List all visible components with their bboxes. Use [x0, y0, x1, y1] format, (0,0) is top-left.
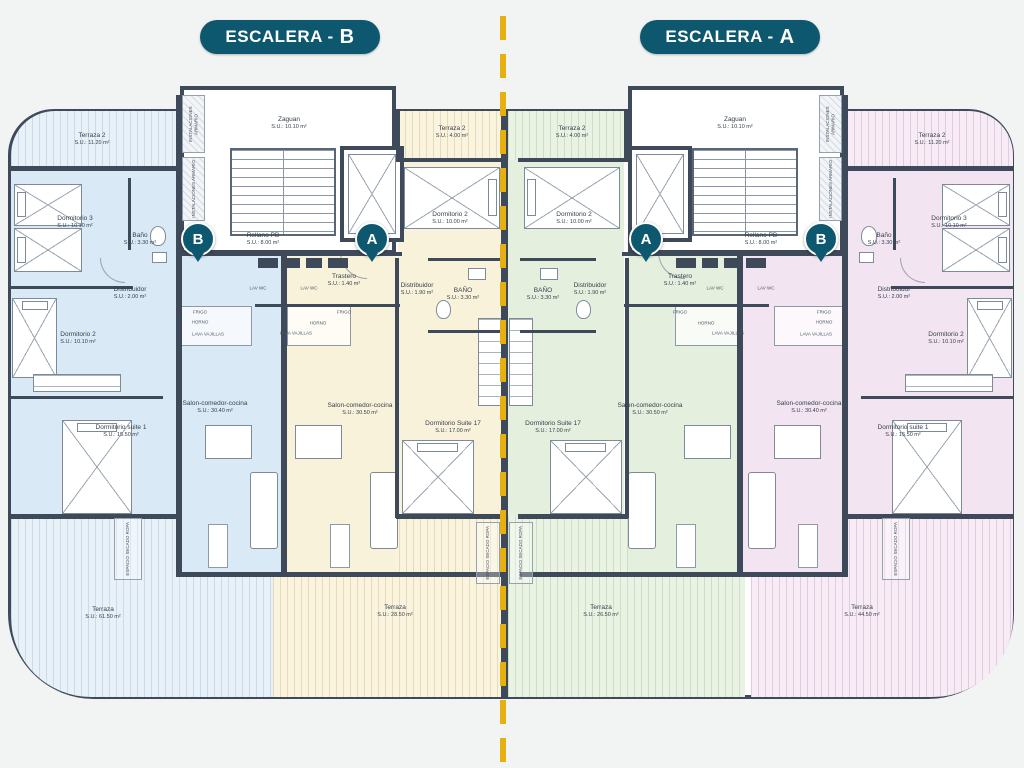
pillow	[17, 192, 26, 217]
planter	[676, 524, 696, 568]
frigo-label: FRIGO	[193, 310, 207, 315]
horno-label: HORNO	[698, 321, 715, 326]
room-area: S.U.: 3.30 m²	[124, 241, 156, 248]
pillow	[565, 443, 606, 452]
room-area: S.U.: 2.00 m²	[878, 295, 911, 302]
wall	[520, 330, 596, 333]
marker-pin-b-right: B	[804, 222, 836, 264]
room-label-cream-trastero: TrasteroS.U.: 1.40 m²	[328, 273, 360, 289]
instalaciones-box: INSTALACIONES ARMARIO	[182, 157, 205, 221]
washbasin	[152, 252, 167, 263]
room-label-cream-dormitorio2: Dormitorio 2S.U.: 10.00 m²	[432, 211, 467, 227]
secado-ropa-label: ESPACIO SECADO ROPA	[518, 526, 523, 580]
room-label-pink-dormitorio2: Dormitorio 2S.U.: 10.10 m²	[928, 331, 963, 347]
bed	[967, 298, 1012, 378]
wall	[255, 304, 400, 307]
toilet	[436, 300, 451, 319]
room-area: S.U.: 15.50 m²	[878, 433, 929, 440]
room-label-pink-terraza2: Terraza 2S.U.: 11.20 m²	[914, 132, 949, 148]
room-area: S.U.: 3.30 m²	[447, 296, 479, 303]
room-name: Baño	[124, 232, 156, 240]
room-label-pink-dormitorio3: Dormitorio 3S.U.: 10.10 m²	[931, 215, 966, 231]
room-label-blue-dormitorio3: Dormitorio 3S.U.: 10.10 m²	[57, 215, 92, 231]
marker-letter: B	[181, 222, 215, 256]
pillow	[488, 179, 497, 216]
sofa	[748, 472, 776, 549]
room-name: Salon-comedor-cocina	[617, 402, 682, 410]
room-area: S.U.: 4.00 m²	[436, 134, 468, 141]
escalera-b-prefix: ESCALERA -	[225, 27, 333, 47]
wall	[625, 258, 629, 518]
room-name: Terraza	[377, 604, 412, 612]
room-area: S.U.: 26.50 m²	[583, 613, 618, 620]
wall	[845, 166, 1013, 171]
room-label-green-trastero: TrasteroS.U.: 1.40 m²	[664, 273, 696, 289]
dining-table	[774, 425, 821, 459]
room-area: S.U.: 1.90 m²	[574, 291, 607, 298]
instalaciones-label: INSTALACIONES ARMARIO	[188, 96, 199, 152]
sofa	[250, 472, 278, 549]
secado-ropa-label: ESPACIO SECADO ROPA	[125, 522, 130, 576]
room-area: S.U.: 10.10 m²	[271, 125, 306, 132]
wall	[395, 258, 399, 518]
room-name: Distribuidor	[401, 282, 434, 290]
room-label-green-dormitorio2: Dormitorio 2S.U.: 10.00 m²	[556, 211, 591, 227]
room-label-pink-suite1: Dormitorio suite 1S.U.: 15.50 m²	[878, 424, 929, 440]
room-label-green-salon: Salon-comedor-cocinaS.U.: 30.50 m²	[617, 402, 682, 418]
room-area: S.U.: 11.20 m²	[74, 141, 109, 148]
room-label-zaguan-b: ZaguanS.U.: 10.10 m²	[271, 116, 306, 132]
horno-label: HORNO	[816, 320, 833, 325]
wall	[520, 572, 846, 577]
room-area: S.U.: 3.30 m²	[868, 241, 900, 248]
room-label-zaguan-a: ZaguanS.U.: 10.10 m²	[717, 116, 752, 132]
room-label-green-terraza: TerrazaS.U.: 26.50 m²	[583, 604, 618, 620]
room-name: Distribuidor	[114, 286, 147, 294]
lav-wc-label: LAV WC	[301, 286, 318, 291]
room-area: S.U.: 61.50 m²	[85, 615, 120, 622]
pillow	[22, 301, 48, 310]
wall	[11, 166, 179, 171]
room-area: S.U.: 10.00 m²	[432, 220, 467, 227]
room-area: S.U.: 10.10 m²	[60, 340, 95, 347]
room-label-cream-bano: BAÑOS.U.: 3.30 m²	[447, 287, 479, 303]
wardrobe	[33, 374, 121, 392]
shelf	[746, 258, 766, 268]
room-area: S.U.: 17.00 m²	[425, 429, 481, 436]
room-name: Terraza 2	[436, 125, 468, 133]
room-area: S.U.: 2.00 m²	[114, 295, 147, 302]
room-name: Distribuidor	[878, 286, 911, 294]
room-name: Baño	[868, 232, 900, 240]
instalaciones-box: INSTALACIONES ARMARIO	[182, 95, 205, 153]
marker-letter: B	[804, 222, 838, 256]
secado-ropa-label: ESPACIO SECADO ROPA	[893, 522, 898, 576]
shelf	[258, 258, 278, 268]
room-name: Dormitorio 2	[928, 331, 963, 339]
room-name: Distribuidor	[574, 282, 607, 290]
room-name: Dormitorio 2	[556, 211, 591, 219]
room-area: S.U.: 1.90 m²	[401, 291, 434, 298]
room-area: S.U.: 10.00 m²	[556, 220, 591, 227]
secado-ropa-label: ESPACIO SECADO ROPA	[485, 526, 490, 580]
room-label-pink-distribuidor: DistribuidorS.U.: 2.00 m²	[878, 286, 911, 302]
room-name: Dormitorio suite 1	[96, 424, 147, 432]
wall	[428, 330, 504, 333]
wall	[520, 258, 596, 261]
lavavajillas-label: LAVA VAJILLAS	[712, 331, 744, 336]
room-name: Rellano PB	[247, 232, 280, 240]
marker-pin-a-right: A	[629, 222, 661, 264]
room-area: S.U.: 28.50 m²	[377, 613, 412, 620]
room-name: Zaguan	[717, 116, 752, 124]
marker-pin-b-left: B	[181, 222, 213, 264]
wardrobe	[905, 374, 993, 392]
bed	[14, 228, 82, 272]
pillow	[527, 179, 536, 216]
room-label-pink-bano: BañoS.U.: 3.30 m²	[868, 232, 900, 248]
room-label-blue-suite1: Dormitorio suite 1S.U.: 15.50 m²	[96, 424, 147, 440]
instalaciones-box: INSTALACIONES ARMARIO	[819, 95, 842, 153]
shelf	[676, 258, 696, 268]
escalera-a-letter: A	[780, 26, 795, 49]
room-label-cream-terraza2: Terraza 2S.U.: 4.00 m²	[436, 125, 468, 141]
room-area: S.U.: 10.10 m²	[57, 224, 92, 231]
room-label-cream-terraza: TerrazaS.U.: 28.50 m²	[377, 604, 412, 620]
bed	[942, 228, 1010, 272]
lavavajillas-label: LAVA VAJILLAS	[800, 332, 832, 337]
wall	[11, 514, 179, 519]
room-area: S.U.: 1.40 m²	[328, 282, 360, 289]
room-area: S.U.: 1.40 m²	[664, 282, 696, 289]
room-label-rellano-b: Rellano PBS.U.: 8.00 m²	[247, 232, 280, 248]
escalera-b-letter: B	[340, 26, 355, 49]
frigo-label: FRIGO	[673, 310, 687, 315]
wall	[624, 111, 628, 160]
room-area: S.U.: 30.40 m²	[776, 409, 841, 416]
washbasin	[468, 268, 486, 280]
instalaciones-label: INSTALACIONES ARMARIO	[825, 96, 836, 152]
secado-ropa-box: ESPACIO SECADO ROPA	[509, 522, 533, 584]
wall	[518, 514, 628, 519]
room-name: Rellano PB	[745, 232, 778, 240]
room-name: Zaguan	[271, 116, 306, 124]
instalaciones-box: INSTALACIONES ARMARIO	[819, 157, 842, 221]
room-area: S.U.: 15.50 m²	[96, 433, 147, 440]
pillow	[17, 237, 26, 263]
pillow	[998, 237, 1007, 263]
room-name: Dormitorio 3	[57, 215, 92, 223]
lav-wc-label: LAV WC	[758, 286, 775, 291]
escalera-b-title: ESCALERA -B	[200, 20, 380, 54]
room-area: S.U.: 10.10 m²	[931, 224, 966, 231]
planter	[208, 524, 228, 568]
marker-pin-a-left: A	[355, 222, 387, 264]
room-name: Terraza	[844, 604, 879, 612]
wall	[842, 95, 848, 577]
kitchen-counter	[774, 306, 846, 346]
room-name: Trastero	[664, 273, 696, 281]
room-label-green-suite: Dormitorio Suite 17S.U.: 17.00 m²	[525, 420, 581, 436]
dining-table	[684, 425, 731, 459]
room-label-blue-dormitorio2: Dormitorio 2S.U.: 10.10 m²	[60, 331, 95, 347]
shelf	[702, 258, 718, 268]
room-name: Trastero	[328, 273, 360, 281]
room-area: S.U.: 10.10 m²	[717, 125, 752, 132]
room-area: S.U.: 4.00 m²	[556, 134, 588, 141]
room-label-green-terraza2: Terraza 2S.U.: 4.00 m²	[556, 125, 588, 141]
pillow	[977, 301, 1003, 310]
room-area: S.U.: 10.10 m²	[928, 340, 963, 347]
room-name: Salon-comedor-cocina	[182, 400, 247, 408]
pillow	[417, 443, 458, 452]
dining-table	[205, 425, 252, 459]
room-area: S.U.: 8.00 m²	[247, 241, 280, 248]
instalaciones-label: INSTALACIONES ARMARIO	[191, 160, 196, 218]
room-name: Dormitorio Suite 17	[525, 420, 581, 428]
horno-label: HORNO	[310, 321, 327, 326]
wall	[396, 158, 506, 162]
room-name: BAÑO	[447, 287, 479, 295]
sofa	[370, 472, 398, 549]
room-label-blue-terraza2: Terraza 2S.U.: 11.20 m²	[74, 132, 109, 148]
room-name: Salon-comedor-cocina	[776, 400, 841, 408]
frigo-label: FRIGO	[817, 310, 831, 315]
room-name: Dormitorio suite 1	[878, 424, 929, 432]
shelf	[328, 258, 348, 268]
room-area: S.U.: 44.50 m²	[844, 613, 879, 620]
wall	[396, 111, 400, 160]
room-label-blue-bano: BañoS.U.: 3.30 m²	[124, 232, 156, 248]
room-area: S.U.: 11.20 m²	[914, 141, 949, 148]
lav-wc-label: LAV WC	[707, 286, 724, 291]
room-label-blue-salon: Salon-comedor-cocinaS.U.: 30.40 m²	[182, 400, 247, 416]
wall	[624, 304, 769, 307]
kitchen-counter	[180, 306, 252, 346]
pillow	[998, 192, 1007, 217]
center-division-dashed-line	[500, 16, 506, 764]
wall	[178, 572, 504, 577]
room-name: Dormitorio 2	[432, 211, 467, 219]
room-area: S.U.: 30.50 m²	[617, 411, 682, 418]
instalaciones-label: INSTALACIONES ARMARIO	[828, 160, 833, 218]
sofa	[628, 472, 656, 549]
room-label-cream-suite: Dormitorio Suite 17S.U.: 17.00 m²	[425, 420, 481, 436]
room-label-blue-distribuidor: DistribuidorS.U.: 2.00 m²	[114, 286, 147, 302]
wall	[428, 258, 504, 261]
room-name: Terraza 2	[914, 132, 949, 140]
room-label-blue-terraza: TerrazaS.U.: 61.50 m²	[85, 606, 120, 622]
floor-plan: INSTALACIONES ARMARIO INSTALACIONES ARMA…	[0, 0, 1024, 768]
room-name: Dormitorio 2	[60, 331, 95, 339]
wall	[861, 396, 1013, 399]
room-label-green-distribuidor: DistribuidorS.U.: 1.90 m²	[574, 282, 607, 298]
room-area: S.U.: 3.30 m²	[527, 296, 559, 303]
room-area: S.U.: 17.00 m²	[525, 429, 581, 436]
room-area: S.U.: 30.50 m²	[327, 411, 392, 418]
secado-ropa-box: ESPACIO SECADO ROPA	[476, 522, 500, 584]
wall	[396, 514, 506, 519]
planter	[330, 524, 350, 568]
staircase-a	[692, 148, 798, 236]
marker-letter: A	[629, 222, 663, 256]
room-label-cream-distribuidor: DistribuidorS.U.: 1.90 m²	[401, 282, 434, 298]
bed	[12, 298, 57, 378]
wall	[11, 396, 163, 399]
room-name: Dormitorio 3	[931, 215, 966, 223]
secado-ropa-box: ESPACIO SECADO ROPA	[114, 518, 142, 580]
room-name: Dormitorio Suite 17	[425, 420, 481, 428]
horno-label: HORNO	[192, 320, 209, 325]
room-area: S.U.: 8.00 m²	[745, 241, 778, 248]
wall	[845, 514, 1013, 519]
room-name: BAÑO	[527, 287, 559, 295]
room-name: Terraza	[583, 604, 618, 612]
shelf	[306, 258, 322, 268]
toilet	[576, 300, 591, 319]
room-name: Salon-comedor-cocina	[327, 402, 392, 410]
bed	[402, 440, 474, 514]
frigo-label: FRIGO	[337, 310, 351, 315]
lav-wc-label: LAV WC	[250, 286, 267, 291]
room-name: Terraza 2	[74, 132, 109, 140]
escalera-a-title: ESCALERA -A	[640, 20, 820, 54]
bed	[550, 440, 622, 514]
room-label-pink-salon: Salon-comedor-cocinaS.U.: 30.40 m²	[776, 400, 841, 416]
dining-table	[295, 425, 342, 459]
room-name: Terraza	[85, 606, 120, 614]
marker-letter: A	[355, 222, 389, 256]
washbasin	[859, 252, 874, 263]
room-label-green-bano: BAÑOS.U.: 3.30 m²	[527, 287, 559, 303]
washbasin	[540, 268, 558, 280]
lavavajillas-label: LAVA VAJILLAS	[280, 331, 312, 336]
secado-ropa-box: ESPACIO SECADO ROPA	[882, 518, 910, 580]
room-label-cream-salon: Salon-comedor-cocinaS.U.: 30.50 m²	[327, 402, 392, 418]
room-name: Terraza 2	[556, 125, 588, 133]
room-area: S.U.: 30.40 m²	[182, 409, 247, 416]
room-label-pink-terraza: TerrazaS.U.: 44.50 m²	[844, 604, 879, 620]
wall	[518, 158, 628, 162]
staircase-b	[230, 148, 336, 236]
planter	[798, 524, 818, 568]
lavavajillas-label: LAVA VAJILLAS	[192, 332, 224, 337]
room-label-rellano-a: Rellano PBS.U.: 8.00 m²	[745, 232, 778, 248]
escalera-a-prefix: ESCALERA -	[665, 27, 773, 47]
